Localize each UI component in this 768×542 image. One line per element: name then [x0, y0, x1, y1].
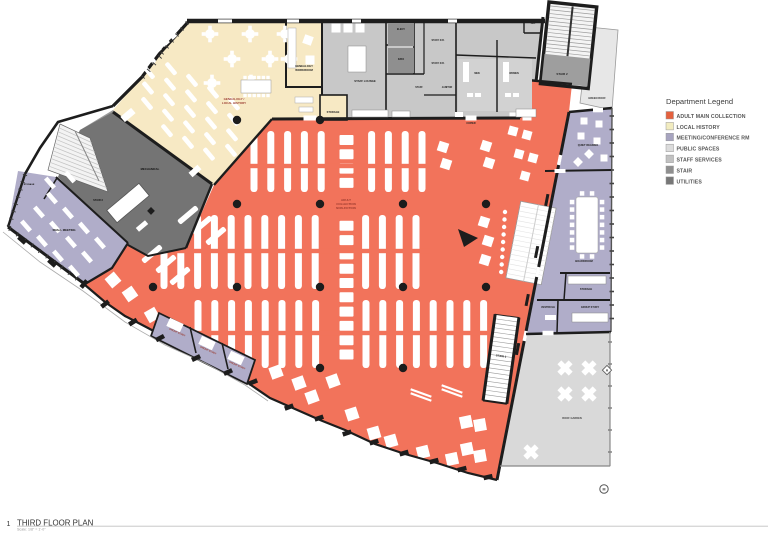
svg-text:VESTIBULE: VESTIBULE	[541, 306, 555, 309]
svg-text:STAIR 3: STAIR 3	[93, 198, 103, 202]
svg-text:GREEN ROOF: GREEN ROOF	[588, 96, 606, 100]
svg-text:STORAGE: STORAGE	[580, 288, 593, 291]
svg-text:STORAGE: STORAGE	[327, 110, 340, 114]
svg-text:1: 1	[7, 521, 11, 528]
svg-text:MEETING/CONFERENCE RM: MEETING/CONFERENCE RM	[677, 136, 750, 142]
svg-text:LOCAL HISTORY: LOCAL HISTORY	[677, 125, 721, 131]
svg-text:MEN: MEN	[474, 72, 480, 75]
svg-text:STAIR 2: STAIR 2	[556, 72, 568, 76]
svg-text:STAFF SERVICES: STAFF SERVICES	[677, 158, 723, 164]
svg-text:Department Legend: Department Legend	[666, 97, 733, 106]
svg-text:SMALL MEETING: SMALL MEETING	[52, 228, 75, 232]
svg-text:STAFF: STAFF	[415, 86, 423, 89]
svg-text:PUBLIC SPACES: PUBLIC SPACES	[677, 147, 720, 153]
svg-text:COPIER: COPIER	[466, 122, 475, 125]
svg-text:QUIET READING: QUIET READING	[578, 143, 599, 147]
svg-text:STAIR: STAIR	[677, 168, 693, 174]
svg-text:STORAGE: STORAGE	[24, 183, 35, 186]
svg-text:MECHANICAL: MECHANICAL	[141, 167, 160, 171]
svg-text:WORKROOM: WORKROOM	[295, 68, 313, 72]
svg-text:WOMEN: WOMEN	[509, 72, 519, 75]
svg-text:STAFF R.R.: STAFF R.R.	[432, 62, 445, 65]
svg-text:STAFF R.R.: STAFF R.R.	[432, 39, 445, 42]
svg-text:ROOF GARDEN: ROOF GARDEN	[562, 416, 582, 420]
svg-text:GROUP STUDY: GROUP STUDY	[581, 306, 600, 309]
svg-text:JANITOR: JANITOR	[442, 86, 453, 89]
svg-text:STAFF LOUNGE: STAFF LOUNGE	[354, 79, 376, 83]
svg-text:LAV.: LAV.	[531, 22, 536, 25]
svg-text:M: M	[603, 488, 606, 492]
svg-text:THIRD FLOOR PLAN: THIRD FLOOR PLAN	[17, 518, 94, 527]
svg-text:ADULT MAIN COLLECTION: ADULT MAIN COLLECTION	[677, 114, 746, 120]
svg-text:BOARDROOM: BOARDROOM	[575, 259, 593, 263]
svg-text:DATA: DATA	[398, 58, 405, 61]
svg-text:NON-FICTION: NON-FICTION	[336, 206, 356, 210]
svg-text:Scale: 1/8" = 1'-0": Scale: 1/8" = 1'-0"	[17, 528, 46, 532]
svg-text:LOCAL HISTORY: LOCAL HISTORY	[222, 101, 246, 105]
svg-text:UTILITIES: UTILITIES	[677, 179, 703, 185]
svg-text:ELECT.: ELECT.	[397, 28, 406, 31]
